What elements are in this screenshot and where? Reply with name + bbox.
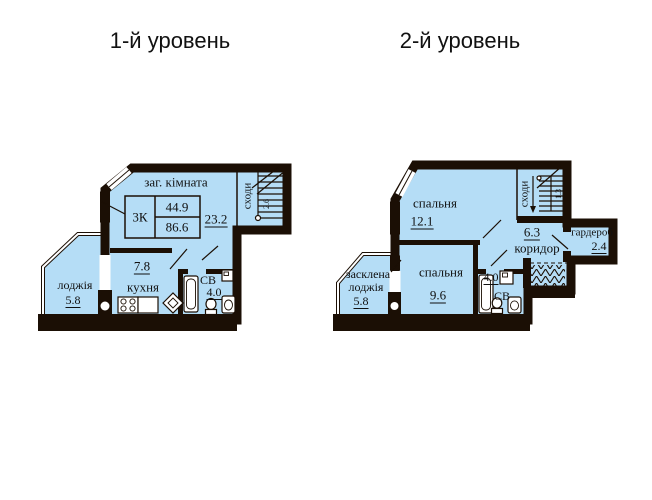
wall-column <box>98 290 112 316</box>
area-bathroom: 4.0 <box>484 271 499 285</box>
area-bedroom-2: 9.6 <box>430 289 446 304</box>
counter-icon <box>138 297 158 313</box>
toilet-icon <box>206 299 217 315</box>
info-total-area: 86.6 <box>166 221 189 234</box>
label-bathroom: СВ <box>494 290 510 302</box>
label-loggia-line2: лоджія <box>349 281 384 293</box>
area-loggia: 5.8 <box>66 294 81 308</box>
floor-plan-sheet: 1-й уровень 2-й уровень <box>0 0 652 500</box>
level-2-drawing <box>325 150 625 345</box>
loggia-door-opening <box>390 271 401 292</box>
label-bedroom-1: спальня <box>413 197 457 210</box>
area-wardrobe: 2.4 <box>592 240 607 254</box>
hatch-low-area <box>531 265 565 286</box>
stairs-dimension: 1.3 <box>555 189 563 199</box>
washing-machine-icon <box>500 271 513 284</box>
label-stairs: сходи <box>243 183 254 210</box>
area-corridor: 6.3 <box>524 226 540 241</box>
area-bedroom-1: 12.1 <box>411 215 434 230</box>
label-corridor: коридор <box>514 242 559 255</box>
label-stairs: сходи <box>520 181 531 208</box>
area-hall: 7.8 <box>134 260 150 275</box>
label-loggia-line1: засклена <box>346 268 390 280</box>
washing-machine-icon <box>222 270 233 281</box>
stove-icon <box>118 297 138 313</box>
label-kitchen: кухня <box>127 281 159 294</box>
area-loggia: 5.8 <box>354 295 369 309</box>
label-living-room: заг. кімната <box>144 176 207 189</box>
loggia-door-opening <box>100 255 111 290</box>
sink-icon <box>222 296 235 313</box>
title-level-1: 1-й уровень <box>70 28 270 54</box>
bathtub-icon <box>184 276 198 312</box>
label-loggia: лоджія <box>58 279 93 291</box>
info-apartment-type: 3К <box>132 211 147 224</box>
low-zone-bottom-wall <box>524 286 575 298</box>
stairs-dimension: 2.6 <box>263 199 271 209</box>
area-living-room: 23.2 <box>205 213 228 228</box>
label-wardrobe: гардероб <box>571 228 613 239</box>
base-wall <box>38 314 237 331</box>
wall-column <box>388 292 401 316</box>
floor-plan-level-2: спальня 12.1 спальня 9.6 засклена лоджія… <box>325 150 625 345</box>
title-level-2: 2-й уровень <box>360 28 560 54</box>
area-bathroom: 4.0 <box>207 286 222 300</box>
label-bedroom-2: спальня <box>419 266 463 279</box>
info-living-area: 44.9 <box>166 201 189 214</box>
base-wall <box>333 314 530 331</box>
floor-plan-level-1: заг. кімната 3К 44.9 86.6 23.2 7.8 кухня… <box>30 150 310 345</box>
